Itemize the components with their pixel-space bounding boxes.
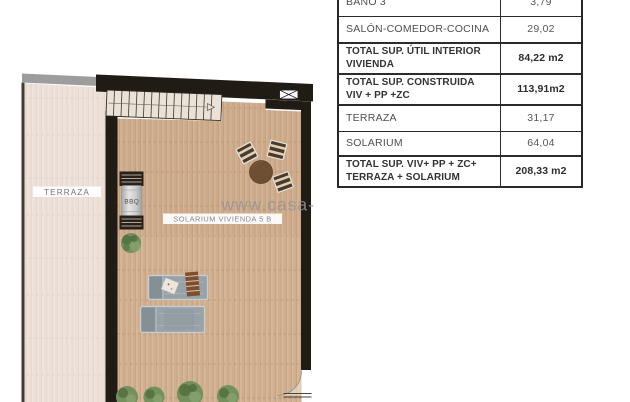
row-value: 29,02 (501, 16, 583, 43)
row-value: 64,04 (501, 131, 583, 156)
table-row: TOTAL SUP. CONSTRUIDA VIV + PP +ZC 113,9… (338, 74, 582, 105)
round-table (250, 161, 273, 184)
plant-icon (121, 233, 141, 253)
divider-wall (106, 111, 118, 402)
row-label: TOTAL SUP. CONSTRUIDA VIV + PP +ZC (338, 74, 501, 105)
terraza-left-wall (22, 83, 25, 402)
row-value: 113,91m2 (501, 74, 583, 105)
rooflight-icon (280, 90, 299, 99)
sun-lounger (149, 271, 208, 299)
row-value: 84,22 m2 (501, 43, 583, 74)
row-label: TOTAL SUP. VIV+ PP + ZC+ TERRAZA + SOLAR… (338, 156, 501, 187)
surface-area-table: BAÑO 3 3,79 SALÓN-COMEDOR-COCINA 29,02 T… (337, 0, 583, 188)
row-label: BAÑO 3 (338, 0, 501, 16)
table-row: TERRAZA 31,17 (338, 105, 582, 131)
right-wall (301, 108, 311, 370)
stairs (106, 90, 222, 121)
table-row: SALÓN-COMEDOR-COCINA 29,02 (338, 16, 582, 43)
row-value: 31,17 (501, 105, 583, 131)
svg-text:TERRAZA: TERRAZA (44, 188, 90, 197)
row-label: SALÓN-COMEDOR-COCINA (338, 16, 501, 43)
row-label: TERRAZA (338, 105, 501, 131)
row-value: 208,33 m2 (501, 156, 583, 187)
table-row: TOTAL SUP. ÚTIL INTERIOR VIVIENDA 84,22 … (338, 43, 582, 74)
watermark-text: www.casa- (220, 195, 315, 215)
row-label: TOTAL SUP. ÚTIL INTERIOR VIVIENDA (338, 43, 501, 74)
table-row: BAÑO 3 3,79 (338, 0, 582, 16)
table-row: SOLARIUM 64,04 (338, 131, 582, 156)
floor-plan: BBQ (0, 0, 330, 402)
towel (185, 271, 200, 296)
bbq-grill: BBQ (120, 172, 144, 230)
floorplan-page: BBQ (0, 0, 630, 402)
bbq-label: BBQ (124, 199, 139, 206)
row-value: 3,79 (501, 0, 583, 16)
terraza-label: TERRAZA (33, 187, 101, 198)
sun-lounger (141, 307, 205, 333)
table-row: TOTAL SUP. VIV+ PP + ZC+ TERRAZA + SOLAR… (338, 156, 582, 187)
solarium-label: SOLARIUM VIVIENDA 5 B (163, 214, 282, 225)
terraza-area (22, 74, 107, 402)
row-label: SOLARIUM (338, 131, 501, 156)
svg-text:SOLARIUM VIVIENDA 5 B: SOLARIUM VIVIENDA 5 B (173, 215, 271, 224)
surface-table-grid: BAÑO 3 3,79 SALÓN-COMEDOR-COCINA 29,02 T… (337, 0, 583, 188)
